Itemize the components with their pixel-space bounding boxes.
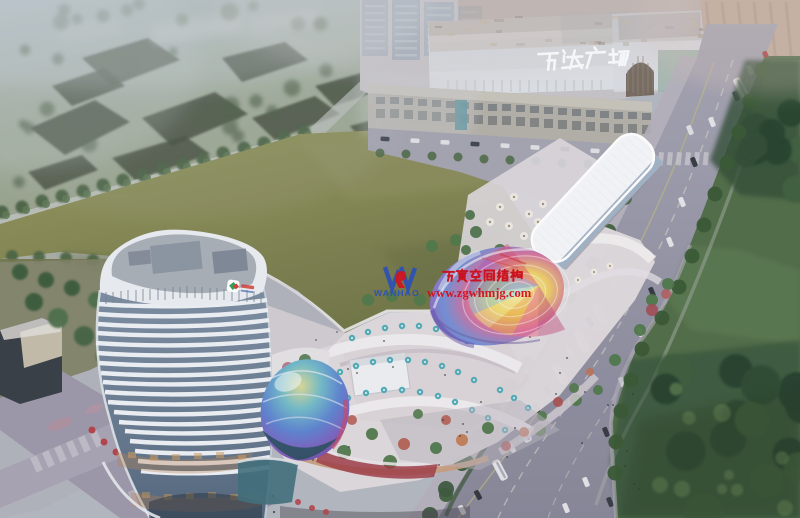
- svg-text:www.zgwhmjg.com: www.zgwhmjg.com: [427, 286, 532, 300]
- svg-text:WANHAO: WANHAO: [374, 288, 420, 298]
